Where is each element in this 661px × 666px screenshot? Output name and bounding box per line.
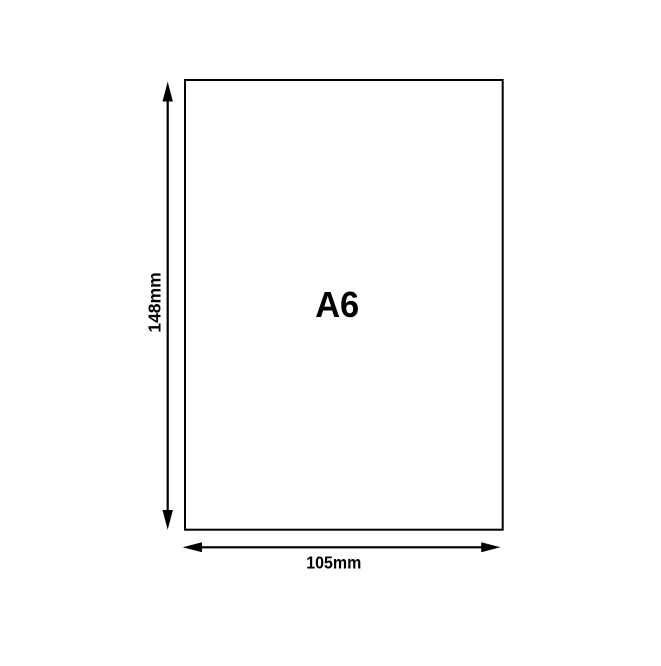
svg-text:148mm: 148mm bbox=[145, 272, 165, 332]
svg-text:A6: A6 bbox=[315, 284, 359, 325]
svg-text:105mm: 105mm bbox=[306, 553, 361, 573]
